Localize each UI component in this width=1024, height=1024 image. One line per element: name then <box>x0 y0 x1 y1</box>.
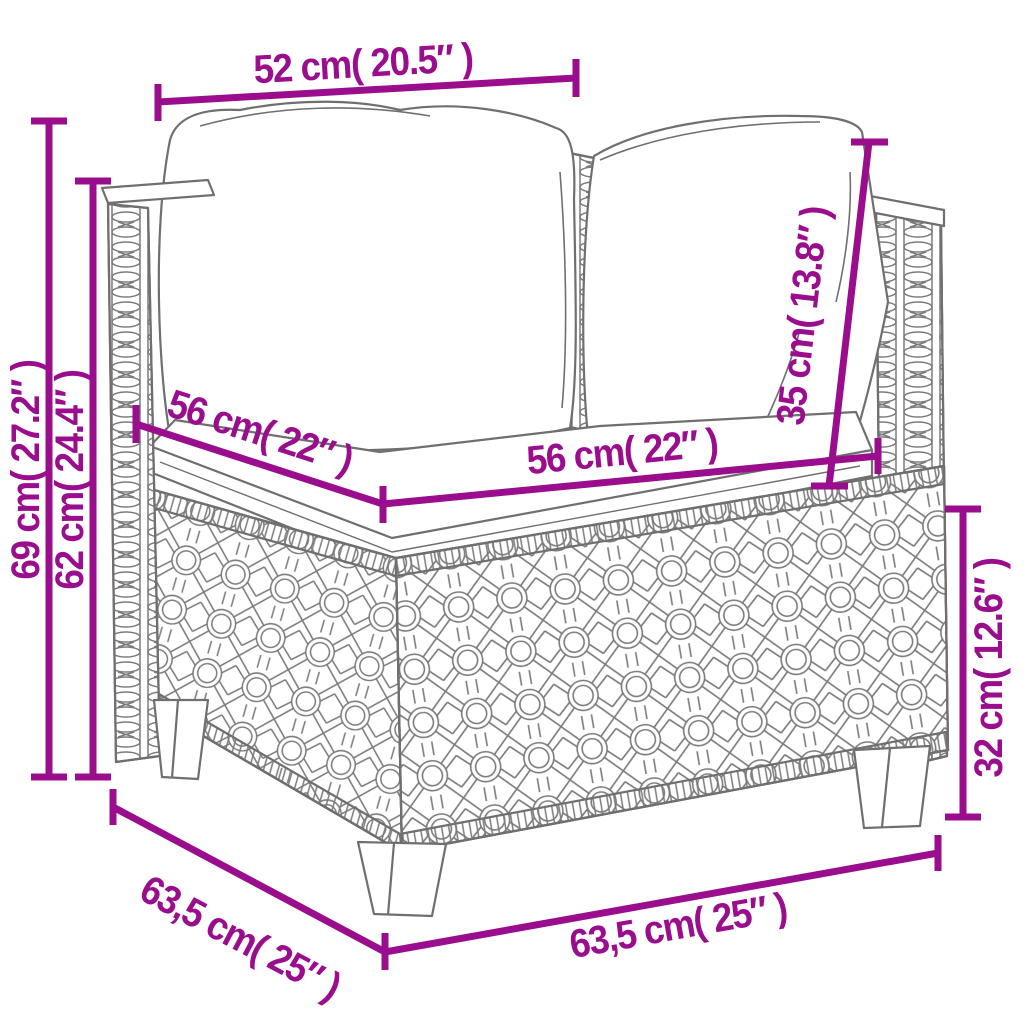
dimension-label-base-height: 32 cm( 12.6″ ) <box>969 558 1009 777</box>
dimension-diagram: 52 cm( 20.5″ ) 69 cm( 27.2″ ) 62 cm( 24.… <box>0 0 1024 1024</box>
right-leg <box>854 746 930 828</box>
dimension-label-total-height: 69 cm( 27.2″ ) <box>6 360 46 579</box>
dimension-label-arm-height: 62 cm( 24.4″ ) <box>50 370 90 589</box>
left-leg <box>154 700 208 779</box>
front-leg <box>358 842 446 916</box>
